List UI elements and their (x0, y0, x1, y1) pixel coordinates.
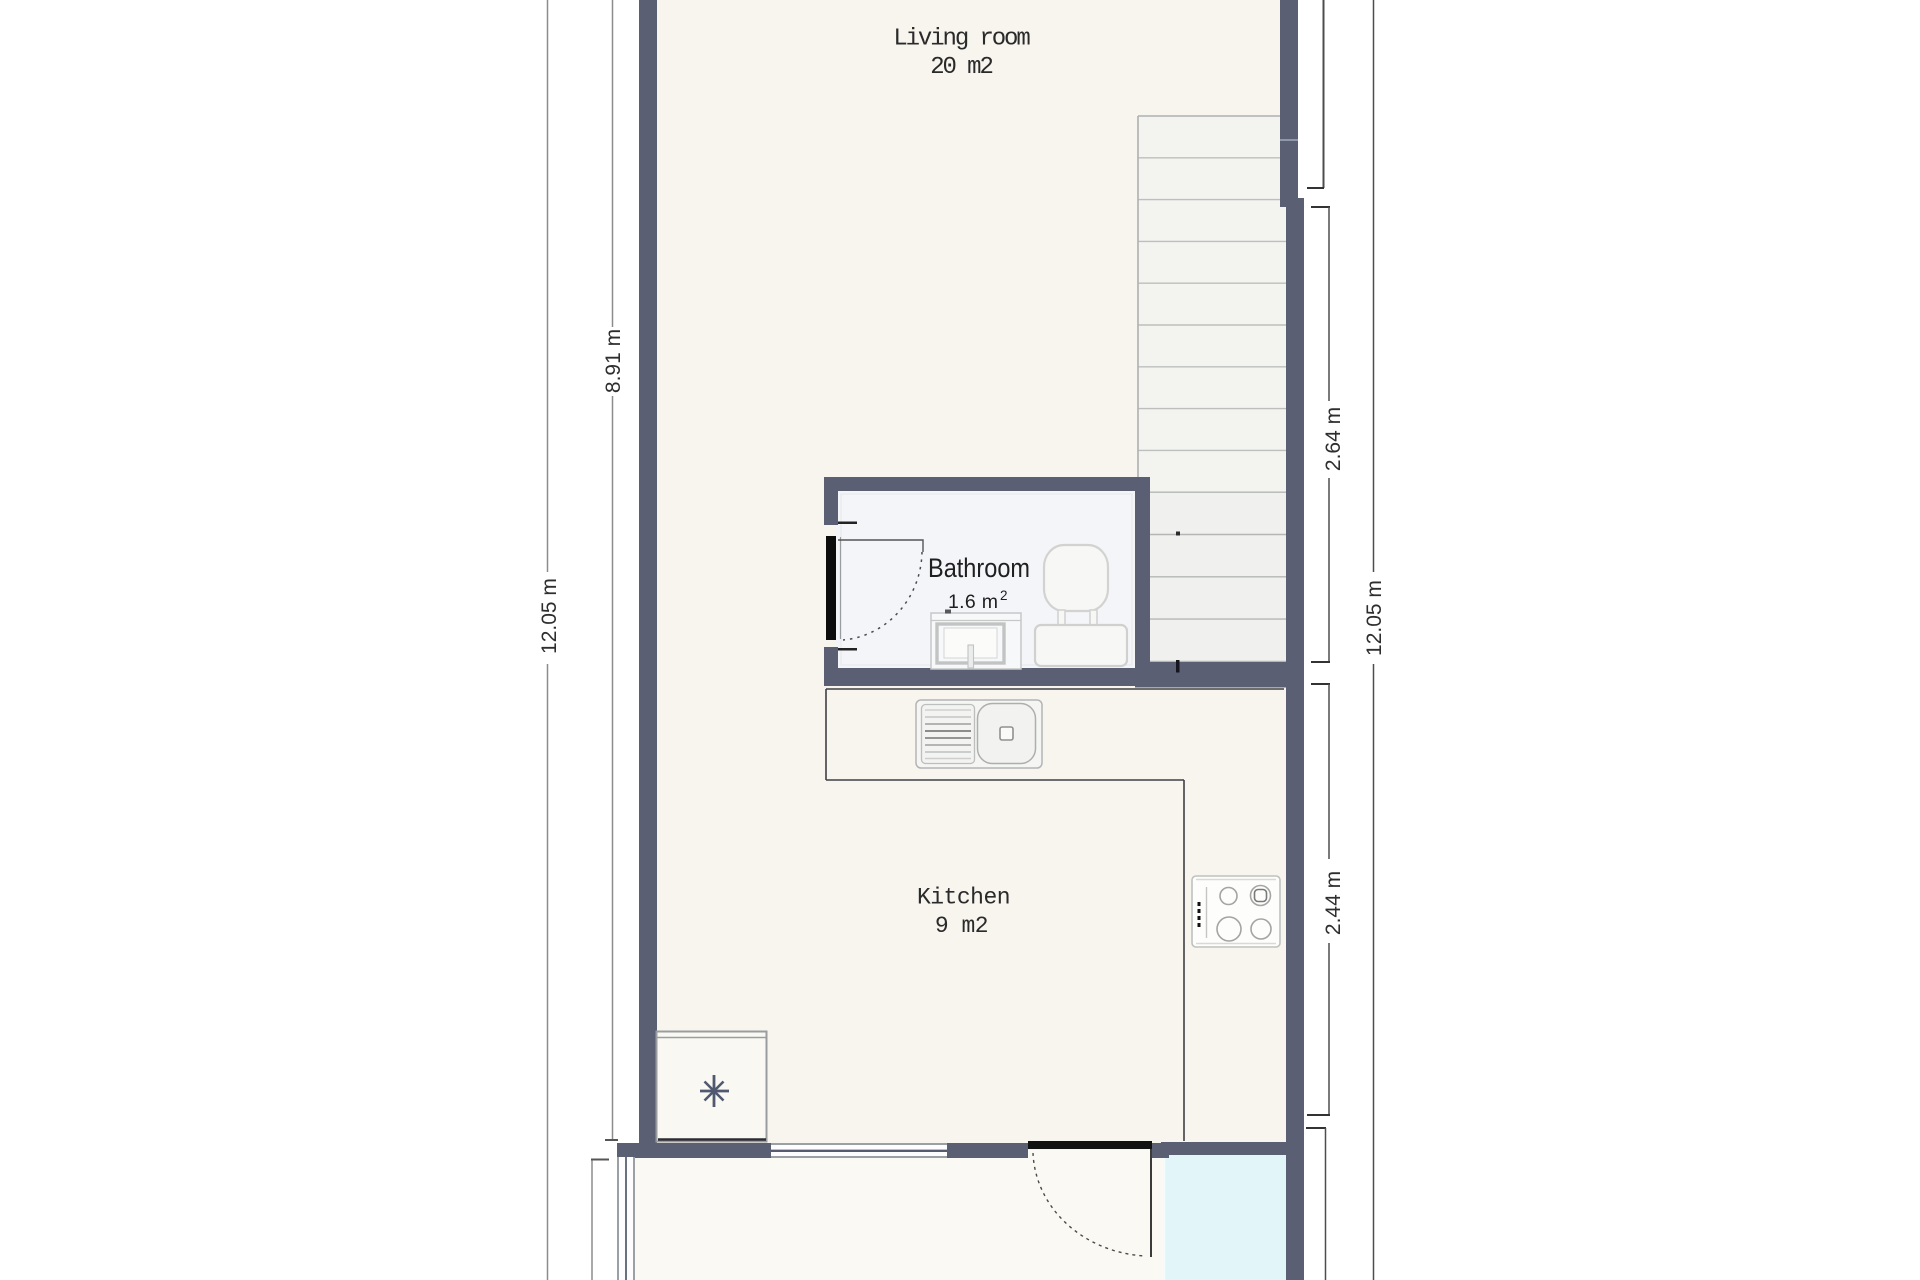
svg-text:2.64 m: 2.64 m (1322, 407, 1345, 471)
svg-text:8.91 m: 8.91 m (602, 329, 625, 393)
svg-text:Bathroom: Bathroom (928, 553, 1030, 583)
svg-text:2: 2 (1000, 588, 1008, 603)
svg-text:12.05 m: 12.05 m (1363, 580, 1386, 656)
svg-text:Living room: Living room (893, 26, 1030, 53)
svg-text:12.05 m: 12.05 m (538, 578, 561, 654)
svg-text:2.44 m: 2.44 m (1322, 871, 1345, 935)
svg-text:20 m2: 20 m2 (930, 54, 992, 81)
svg-text:Kitchen: Kitchen (917, 885, 1010, 911)
svg-text:1.6 m: 1.6 m (948, 591, 998, 613)
svg-text:9 m2: 9 m2 (935, 913, 988, 939)
